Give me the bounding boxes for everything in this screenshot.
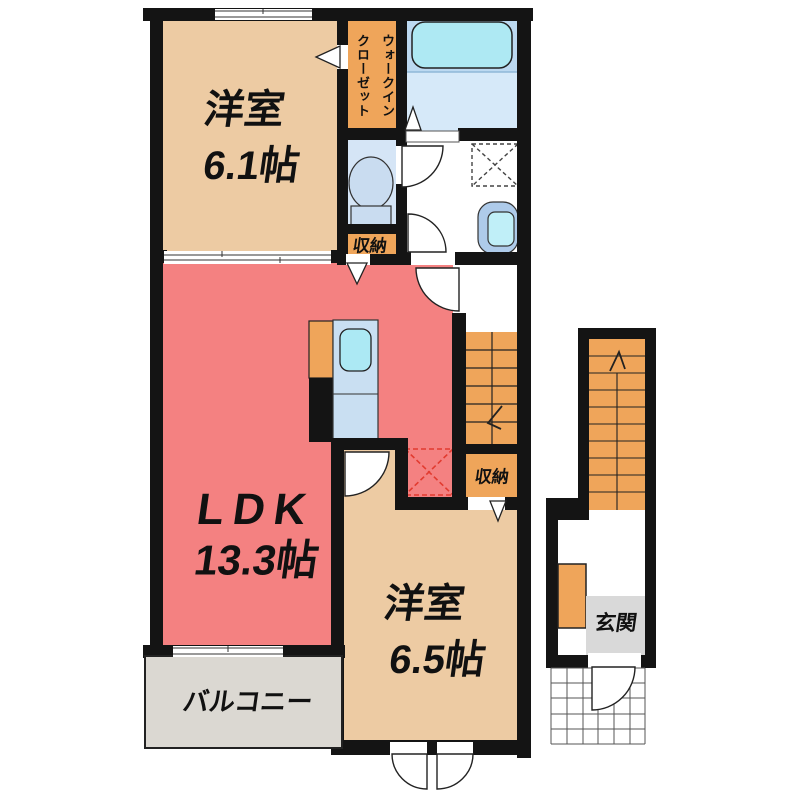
wall-below-storage2-left xyxy=(395,497,470,510)
hall-storage-label: 収納 xyxy=(351,232,389,257)
bedroom1-name-label: 洋室 xyxy=(201,77,289,135)
stair-storage-label: 収納 xyxy=(473,463,511,488)
bathtub-icon xyxy=(412,22,512,68)
bedroom2-name-label: 洋室 xyxy=(381,571,469,629)
floorplan-canvas: 洋室 6.1帖 ウォークイン クローゼット 収納 LDK 13.3帖 洋室 6.… xyxy=(0,0,800,800)
window-balcony xyxy=(173,646,283,657)
wall-left xyxy=(150,8,163,660)
entrance-door-opening xyxy=(588,653,641,668)
window-top xyxy=(215,9,312,20)
french-door-left-swing xyxy=(392,754,427,789)
ldk-floor-upper xyxy=(150,256,453,452)
entrance-label: 玄関 xyxy=(593,607,639,637)
wall-right xyxy=(517,8,531,758)
wall-below-storage2-right xyxy=(505,497,531,510)
french-door-gap-left xyxy=(390,742,427,755)
wall-stair-column-left xyxy=(452,313,466,510)
washing-machine-place-icon xyxy=(472,144,518,186)
wall-bath-bottom xyxy=(458,128,522,141)
wall-bedroom2-bottom xyxy=(331,740,531,755)
annex-entrance-building xyxy=(546,328,656,744)
walk-in-closet-label: ウォークイン クローゼット xyxy=(348,22,400,130)
toilet-tank xyxy=(351,206,391,225)
wall-midcol-lower xyxy=(396,184,407,258)
sliding-door-bedroom1-ldk xyxy=(164,251,331,264)
bedroom1-size-label: 6.1帖 xyxy=(200,133,304,191)
shoe-cabinet-icon xyxy=(558,564,586,628)
kitchen-sink-icon xyxy=(340,329,371,371)
french-door-gap-right xyxy=(437,742,473,755)
kitchen-counter-icon xyxy=(309,320,378,442)
bedroom2-size-label: 6.5帖 xyxy=(386,627,490,685)
washbasin-bowl xyxy=(488,212,514,246)
washroom-door-opening xyxy=(411,252,455,265)
wic-label-line1: ウォークイン xyxy=(375,22,400,130)
balcony-label: バルコニー xyxy=(181,682,316,719)
toilet-icon xyxy=(349,157,393,209)
ldk-size-label: 13.3帖 xyxy=(191,527,323,588)
wic-label-line2: クローゼット xyxy=(350,22,375,130)
wall-stairs-storage-divider xyxy=(452,444,522,454)
wall-slider-stub-right xyxy=(331,250,345,263)
french-door-right-swing xyxy=(437,754,473,789)
